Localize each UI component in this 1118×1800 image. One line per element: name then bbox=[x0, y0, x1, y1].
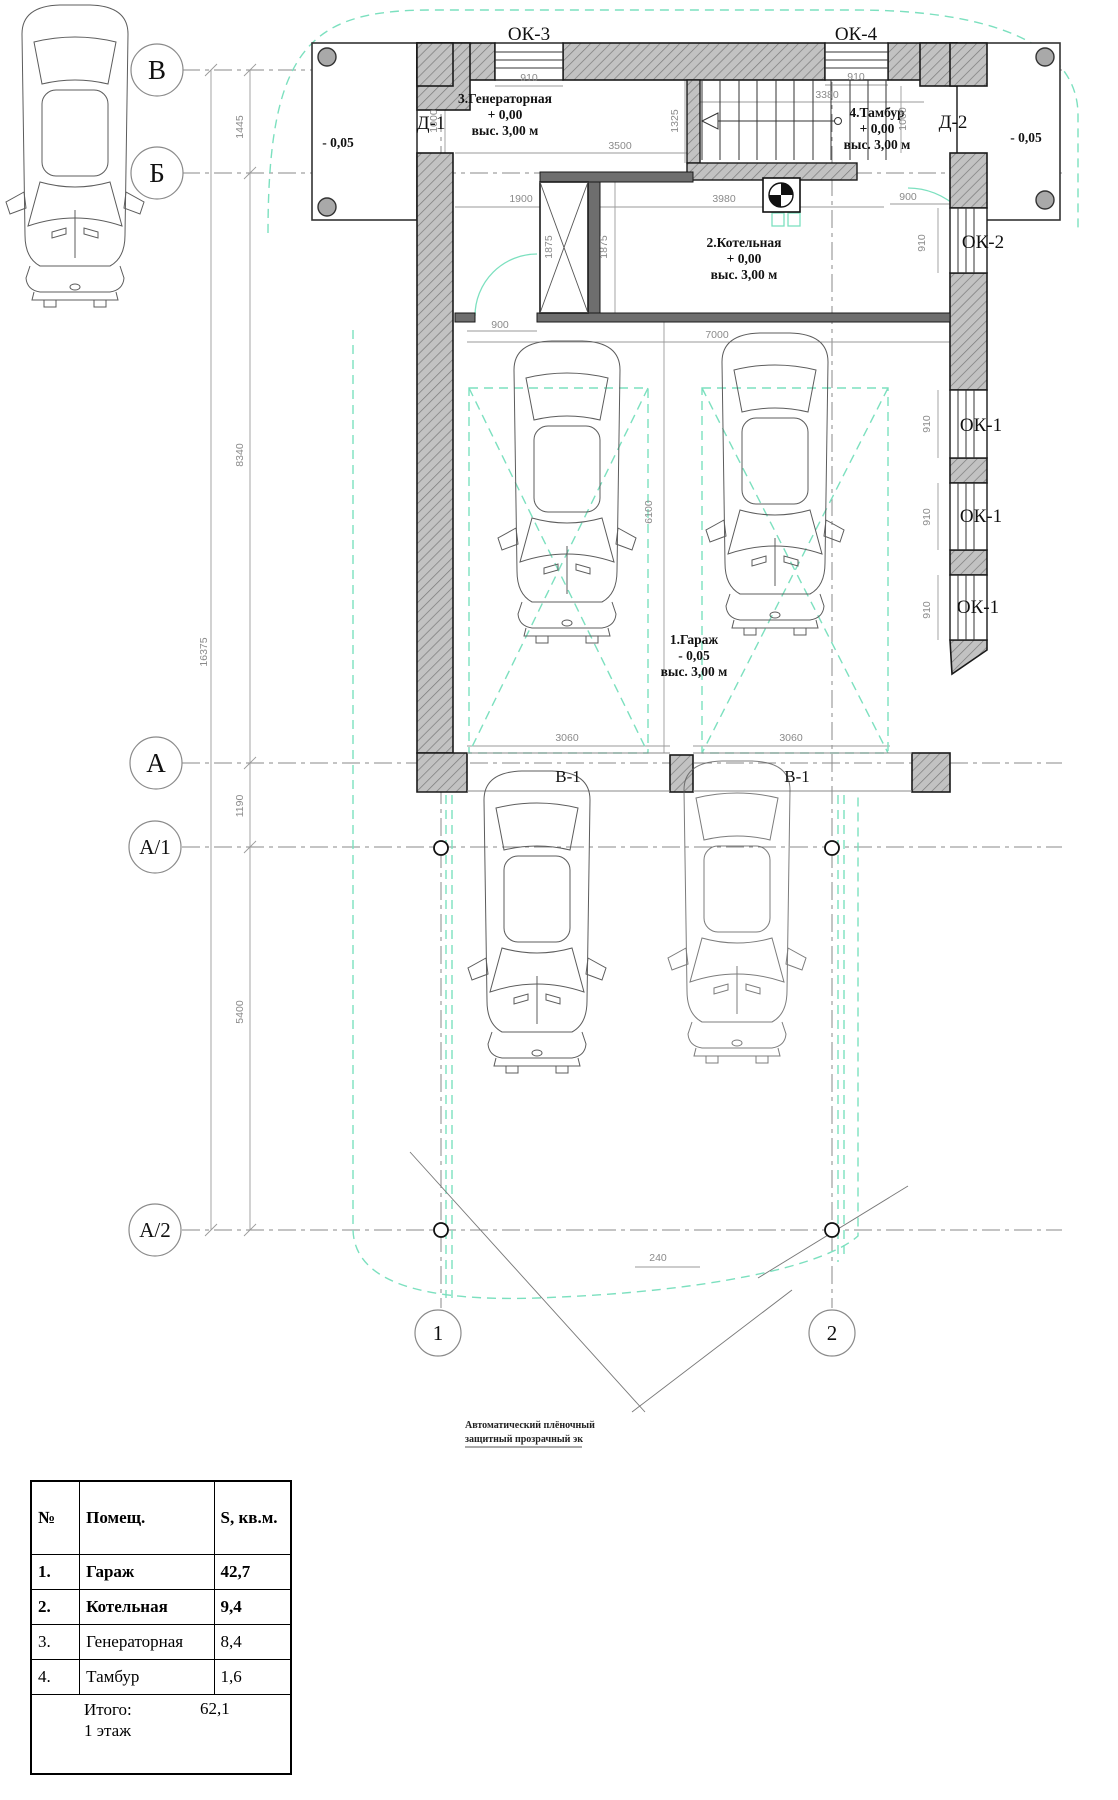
car-template-defs bbox=[6, 5, 144, 307]
svg-text:910: 910 bbox=[520, 72, 538, 84]
svg-text:- 0,05: - 0,05 bbox=[678, 648, 710, 663]
window-label-ok3: ОК-3 bbox=[508, 24, 550, 45]
svg-text:1325: 1325 bbox=[669, 109, 681, 133]
svg-text:1190: 1190 bbox=[234, 795, 246, 818]
svg-text:8340: 8340 bbox=[234, 443, 246, 467]
svg-text:910: 910 bbox=[921, 415, 933, 433]
column-circle bbox=[1036, 191, 1054, 209]
svg-text:900: 900 bbox=[491, 319, 509, 331]
svg-text:1000: 1000 bbox=[897, 107, 909, 131]
axis-label-A: А bbox=[146, 748, 166, 778]
svg-text:3380: 3380 bbox=[815, 89, 839, 101]
room-label-garage: 1.Гараж - 0,05 выс. 3,00 м bbox=[661, 632, 728, 679]
svg-text:выс. 3,00 м: выс. 3,00 м bbox=[711, 267, 778, 282]
table-header-row: № Помещ. S, кв.м. bbox=[31, 1481, 291, 1555]
column-circle bbox=[318, 198, 336, 216]
svg-text:выс. 3,00 м: выс. 3,00 м bbox=[661, 664, 728, 679]
svg-text:900: 900 bbox=[899, 191, 917, 203]
table-total-row: Итого: 1 этаж 62,1 bbox=[31, 1695, 291, 1775]
header-number: № bbox=[31, 1481, 80, 1555]
axis-label-A2: А/2 bbox=[139, 1218, 171, 1242]
svg-text:1.Гараж: 1.Гараж bbox=[670, 632, 719, 647]
svg-text:240: 240 bbox=[649, 1252, 667, 1264]
svg-text:3980: 3980 bbox=[712, 193, 736, 205]
room-label-boiler: 2.Котельная + 0,00 выс. 3,00 м bbox=[707, 235, 782, 282]
annotation-note: Автоматический плёночный защитный прозра… bbox=[465, 1420, 595, 1447]
table-row: 4. Тамбур 1,6 bbox=[31, 1660, 291, 1695]
svg-text:выс. 3,00 м: выс. 3,00 м bbox=[844, 137, 911, 152]
svg-text:2.Котельная: 2.Котельная bbox=[707, 235, 782, 250]
window-label-ok1c: ОК-1 bbox=[957, 597, 999, 618]
floor-plan-drawing: В Б А А/1 А/2 1 2 ОК-3 ОК-4 ОК-2 ОК-1 ОК… bbox=[0, 0, 1118, 1460]
vent-symbol bbox=[763, 178, 800, 212]
svg-text:1445: 1445 bbox=[234, 115, 246, 139]
svg-text:1900: 1900 bbox=[509, 193, 533, 205]
window-label-ok4: ОК-4 bbox=[835, 24, 878, 45]
car-garage-left bbox=[498, 341, 636, 643]
svg-text:+ 0,00: + 0,00 bbox=[860, 121, 895, 136]
axis-label-1: 1 bbox=[433, 1321, 444, 1345]
header-area: S, кв.м. bbox=[214, 1481, 291, 1555]
svg-text:выс. 3,00 м: выс. 3,00 м bbox=[472, 123, 539, 138]
svg-text:910: 910 bbox=[916, 234, 928, 252]
svg-text:7000: 7000 bbox=[705, 329, 729, 341]
table-row: 2. Котельная 9,4 bbox=[31, 1590, 291, 1625]
leader-lines bbox=[410, 1152, 908, 1412]
svg-text:3.Генераторная: 3.Генераторная bbox=[458, 91, 552, 106]
table-row: 3. Генераторная 8,4 bbox=[31, 1625, 291, 1660]
axis-grid-lines bbox=[182, 50, 1062, 1308]
axis-label-A1: А/1 bbox=[139, 835, 171, 859]
svg-text:6100: 6100 bbox=[643, 500, 655, 524]
door-label-d2: Д-2 bbox=[939, 112, 968, 133]
room-label-generator: 3.Генераторная + 0,00 выс. 3,00 м bbox=[458, 91, 552, 138]
svg-text:5400: 5400 bbox=[234, 1000, 246, 1024]
svg-text:+ 0,00: + 0,00 bbox=[488, 107, 523, 122]
header-room: Помещ. bbox=[80, 1481, 214, 1555]
beam-label-left: В-1 bbox=[555, 767, 581, 786]
svg-text:1875: 1875 bbox=[598, 235, 610, 259]
svg-text:защитный прозрачный эк: защитный прозрачный эк bbox=[465, 1434, 583, 1445]
car-outside-left bbox=[468, 771, 606, 1073]
svg-text:910: 910 bbox=[847, 71, 865, 83]
beam-label-right: В-1 bbox=[784, 767, 810, 786]
axis-label-B: В bbox=[148, 55, 166, 85]
svg-text:1000: 1000 bbox=[428, 109, 440, 133]
total-label: Итого: bbox=[84, 1699, 196, 1720]
axis-label-Bb: Б bbox=[149, 158, 165, 188]
total-value: 62,1 bbox=[200, 1699, 230, 1719]
svg-text:1875: 1875 bbox=[543, 235, 555, 259]
column-circle bbox=[1036, 48, 1054, 66]
car-garage-right bbox=[706, 333, 844, 635]
window-label-ok2: ОК-2 bbox=[962, 232, 1004, 253]
svg-text:Автоматический плёночный: Автоматический плёночный bbox=[465, 1420, 595, 1431]
axis-node-circles bbox=[434, 841, 839, 1237]
svg-text:+ 0,00: + 0,00 bbox=[727, 251, 762, 266]
level-mark-right: - 0,05 bbox=[1010, 130, 1042, 145]
room-area-table: № Помещ. S, кв.м. 1. Гараж 42,7 2. Котел… bbox=[30, 1480, 292, 1775]
svg-text:3060: 3060 bbox=[555, 732, 579, 744]
level-mark-left: - 0,05 bbox=[322, 135, 354, 150]
svg-text:16375: 16375 bbox=[198, 637, 210, 666]
car-outside-right bbox=[668, 761, 806, 1063]
svg-text:910: 910 bbox=[921, 508, 933, 526]
window-label-ok1a: ОК-1 bbox=[960, 415, 1002, 436]
svg-text:3500: 3500 bbox=[608, 140, 632, 152]
table-row: 1. Гараж 42,7 bbox=[31, 1555, 291, 1590]
porch-left bbox=[312, 43, 417, 220]
svg-text:3060: 3060 bbox=[779, 732, 803, 744]
total-sublabel: 1 этаж bbox=[84, 1720, 196, 1741]
column-circle bbox=[318, 48, 336, 66]
axis-label-2: 2 bbox=[827, 1321, 838, 1345]
svg-text:910: 910 bbox=[921, 601, 933, 619]
window-label-ok1b: ОК-1 bbox=[960, 506, 1002, 527]
floor-plan-sheet: В Б А А/1 А/2 1 2 ОК-3 ОК-4 ОК-2 ОК-1 ОК… bbox=[0, 0, 1118, 1800]
